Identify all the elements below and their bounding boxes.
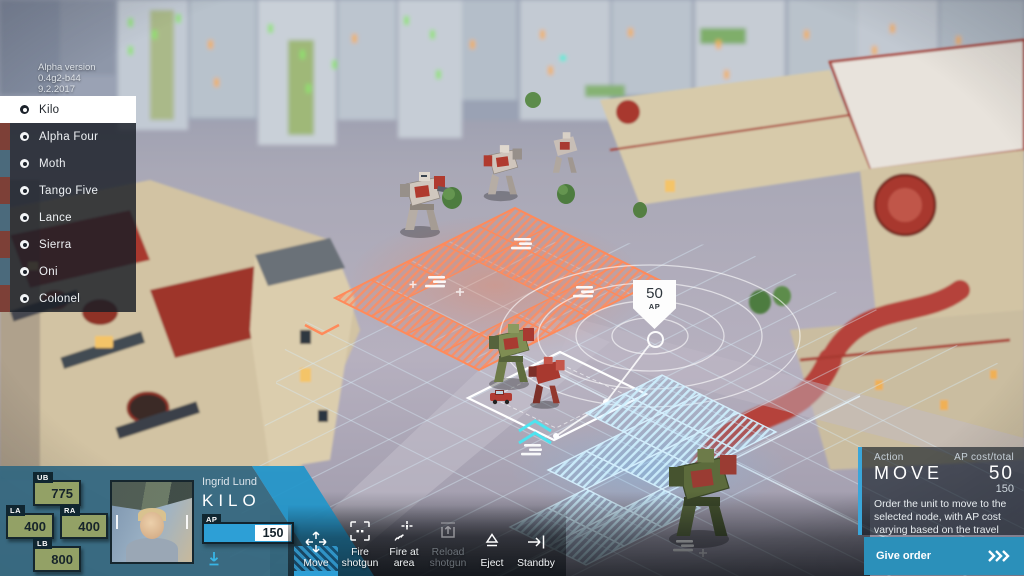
selected-action-cost: 50 [989, 463, 1014, 485]
fire-shotgun-button[interactable]: Fire shotgun [338, 505, 382, 576]
armor-part-label: LA [6, 505, 25, 516]
unit-status-strip [0, 150, 10, 177]
unit-list-item-alpha-four[interactable]: Alpha Four [0, 123, 136, 150]
unit-status-strip [0, 204, 10, 231]
unit-dot-icon [20, 186, 29, 195]
unit-dot-icon [20, 240, 29, 249]
unit-dot-icon [20, 213, 29, 222]
unit-list-item-lance[interactable]: Lance [0, 204, 136, 231]
action-button-label: Fire shotgun [338, 547, 382, 570]
unit-status-strip [0, 177, 10, 204]
selected-action-name: MOVE [874, 463, 943, 484]
pilot-identity: Ingrid Lund KILO [202, 476, 261, 511]
unit-status-strip [0, 258, 10, 285]
armor-part-value: 775 [33, 480, 81, 506]
unit-status-strip [0, 96, 10, 123]
armor-part-label: UB [33, 472, 53, 483]
pilot-portrait [110, 480, 194, 564]
unit-name: Tango Five [39, 185, 98, 197]
ap-gauge: AP 150 [202, 522, 294, 544]
action-bar: Move Fire shotgun Fire at area Reload sh… [288, 505, 566, 576]
ap-gauge-bar: 150 [202, 522, 294, 544]
action-button-label: Eject [481, 558, 504, 570]
unit-status-strip [0, 123, 10, 150]
version-build: 0.4g2-b44 [38, 73, 96, 84]
reload-shotgun-button[interactable]: Reload shotgun [426, 505, 470, 576]
ap-cost-label: AP cost/total [954, 452, 1014, 463]
unit-status-strip [0, 231, 10, 258]
give-order-label: Give order [876, 550, 931, 563]
unit-list-item-sierra[interactable]: Sierra [0, 231, 136, 258]
standby-icon [524, 530, 548, 554]
armor-part-value: 800 [33, 546, 81, 572]
unit-name: Sierra [39, 239, 71, 251]
unit-list-item-oni[interactable]: Oni [0, 258, 136, 285]
armor-part-value: 400 [6, 513, 54, 539]
ap-cost-unit: AP [649, 302, 660, 311]
pilot-name: Ingrid Lund [202, 476, 261, 488]
move-target-node[interactable] [647, 331, 664, 348]
unit-name: Lance [39, 212, 72, 224]
portrait-bracket [186, 515, 188, 529]
unit-dot-icon [20, 267, 29, 276]
armor-upper-body: UB 775 [33, 480, 81, 506]
unit-dot-icon [20, 132, 29, 141]
action-label: Action [874, 452, 904, 463]
armor-part-label: RA [60, 505, 80, 516]
action-button-label: Move [303, 558, 328, 570]
area-target-icon [392, 519, 416, 543]
give-order-button[interactable]: Give order [864, 537, 1024, 575]
standby-button[interactable]: Standby [514, 505, 558, 576]
fire-at-area-button[interactable]: Fire at area [382, 505, 426, 576]
unit-name: Oni [39, 266, 58, 278]
ap-gauge-value: 150 [255, 525, 291, 541]
fire-reticle-icon [348, 519, 372, 543]
unit-list-item-kilo[interactable]: Kilo [0, 96, 136, 123]
eject-button[interactable]: Eject [470, 505, 514, 576]
move-arrows-icon [304, 530, 328, 554]
armor-left-arm: LA 400 [6, 513, 54, 539]
unit-list-item-colonel[interactable]: Colonel [0, 285, 136, 312]
unit-roster: Kilo Alpha Four Moth Tango Five Lance Si… [0, 96, 136, 312]
armor-part-value: 400 [60, 513, 108, 539]
unit-name: Alpha Four [39, 131, 98, 143]
unit-name: Kilo [39, 104, 59, 116]
armor-part-label: LB [33, 538, 52, 549]
version-info: Alpha version 0.4g2-b44 9.2.2017 [38, 62, 96, 95]
version-title: Alpha version [38, 62, 96, 73]
portrait-bracket [116, 515, 118, 529]
armor-right-arm: RA 400 [60, 513, 108, 539]
unit-list-item-tango-five[interactable]: Tango Five [0, 177, 136, 204]
unit-list-item-moth[interactable]: Moth [0, 150, 136, 177]
reload-icon [436, 519, 460, 543]
order-panel: Action AP cost/total MOVE 50 150 Order t… [858, 447, 1024, 576]
eject-icon [480, 530, 504, 554]
move-button[interactable]: Move [294, 505, 338, 576]
ap-cost-value: 50 [646, 285, 663, 302]
unit-dot-icon [20, 294, 29, 303]
unit-callsign: KILO [202, 491, 261, 511]
action-button-label: Standby [517, 558, 555, 570]
action-button-label: Reload shotgun [426, 547, 470, 570]
action-button-label: Fire at area [382, 547, 426, 570]
version-date: 9.2.2017 [38, 84, 96, 95]
unit-name: Colonel [39, 293, 80, 305]
armor-lower-body: LB 800 [33, 546, 81, 572]
download-arrow-icon[interactable] [206, 550, 222, 566]
unit-dot-icon [20, 159, 29, 168]
unit-name: Moth [39, 158, 66, 170]
unit-dot-icon [20, 105, 29, 114]
unit-status-strip [0, 285, 10, 312]
triple-chevron-icon [986, 549, 1012, 563]
game-screen: Alpha version 0.4g2-b44 9.2.2017 Kilo Al… [0, 0, 1024, 576]
order-panel-info: Action AP cost/total MOVE 50 150 Order t… [862, 447, 1024, 535]
